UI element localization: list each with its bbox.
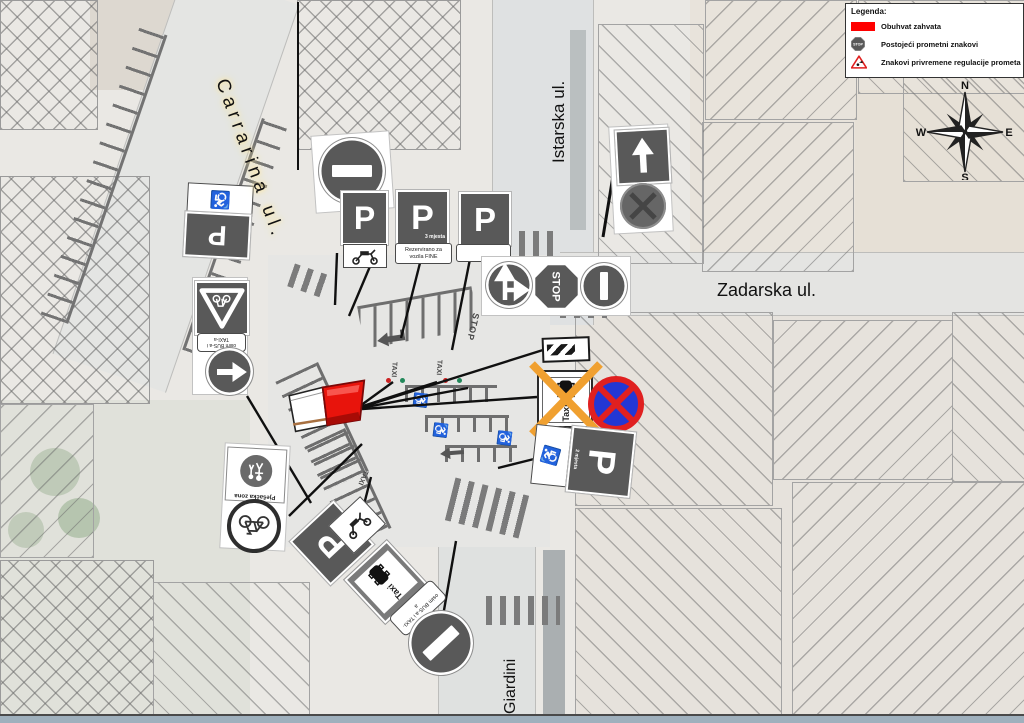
parking-letter: P xyxy=(474,203,496,236)
no-stopping-x-icon xyxy=(620,183,666,229)
callout-lines xyxy=(0,0,1024,723)
parking-disabled-sign-group: ♿ P 2 mjesta xyxy=(530,422,636,498)
legend-item: STOP Postojeći prometni znakovi xyxy=(846,35,1023,53)
work-area-icon xyxy=(851,22,875,31)
barrier-stripes xyxy=(547,344,575,356)
legend-item-label: Postojeći prometni znakovi xyxy=(881,40,978,49)
no-stopping-sign-gray xyxy=(620,183,666,229)
temporary-sign-icon xyxy=(851,55,867,69)
stop-sign: STOP xyxy=(533,263,580,310)
legend-item-label: Znakovi privremene regulacije prometa xyxy=(881,58,1021,67)
parking-places-label: 3 mjesta xyxy=(425,235,445,241)
yield-bicycle-sign xyxy=(195,281,249,335)
stop-text: STOP xyxy=(549,271,561,302)
pedestrian-zone-sign: Pješačka zona xyxy=(225,446,288,503)
compass-north-label: N xyxy=(961,80,969,92)
parking-letter: P xyxy=(411,201,434,235)
legend: Legenda: Obuhvat zahvata STOP Postojeći … xyxy=(845,3,1024,78)
no-entry-sign xyxy=(581,263,627,309)
compass-south-label: S xyxy=(961,172,968,180)
yield-triangle-icon xyxy=(199,286,245,330)
no-stopping-sign-colored xyxy=(588,376,644,432)
mandatory-right-sign xyxy=(206,348,253,395)
straight-or-right-arrows-icon xyxy=(486,262,532,308)
street-label-zadarska: Zadarska ul. xyxy=(717,280,816,301)
work-area-truck xyxy=(286,378,371,436)
bicycle-icon xyxy=(236,513,271,539)
pedestrians-icon xyxy=(244,458,269,483)
compass-east-label: E xyxy=(1005,127,1012,139)
pedestrian-circle xyxy=(239,454,273,488)
right-arrow-icon xyxy=(206,348,253,395)
barrier-board-sign xyxy=(542,336,591,363)
wheelchair-icon: ♿ xyxy=(539,443,564,468)
motorcycle-plate xyxy=(343,244,387,268)
map-bottom-strip xyxy=(0,716,1024,723)
no-entry-bar xyxy=(422,625,459,661)
parking-disabled-sign-group: ♿ P xyxy=(184,182,254,259)
reserved-plate: Rezervirano za vozila FINE xyxy=(395,243,452,264)
street-label-istarska: Istarska ul. xyxy=(549,81,569,163)
legend-item: Obuhvat zahvata xyxy=(846,17,1023,35)
legend-item: Znakovi privremene regulacije prometa xyxy=(846,53,1023,71)
parking-letter: P xyxy=(354,202,375,234)
no-entry-bar xyxy=(332,165,373,178)
parking-places-label: 2 mjesta xyxy=(571,449,579,470)
reserved-plate-text: Rezervirano za vozila FINE xyxy=(400,247,448,260)
up-arrow-icon xyxy=(619,132,667,180)
parking-sign: P xyxy=(459,192,511,246)
wheelchair-icon: ♿ xyxy=(209,189,231,210)
existing-sign-icon: STOP xyxy=(851,37,865,51)
parking-sign: P xyxy=(341,191,388,245)
legend-title: Legenda: xyxy=(846,4,1023,17)
svg-text:STOP: STOP xyxy=(853,43,863,47)
no-entry-bar xyxy=(600,272,609,301)
traffic-regulation-plan: STOP TAXI TAXI TAXI ♿ ♿ ♿ P P xyxy=(0,0,1024,723)
parking-sign: P xyxy=(183,211,251,259)
compass-west-label: W xyxy=(916,127,927,139)
legend-item-label: Obuhvat zahvata xyxy=(881,22,941,31)
compass-rose: N E S W xyxy=(915,80,1015,180)
street-label-giardini: Giardini xyxy=(502,659,520,714)
parking-letter: P xyxy=(207,221,227,250)
straight-or-right-sign xyxy=(486,262,532,308)
taxi-label: Taxi xyxy=(385,582,404,602)
motorcycle-icon xyxy=(338,506,376,544)
parking-sign: P 3 mjesta xyxy=(396,190,449,245)
bus-taxi-plate-text: osim BUS-a i TAXI-a xyxy=(201,337,243,349)
one-way-straight-sign xyxy=(615,128,672,186)
parking-letter: P xyxy=(581,447,621,476)
parking-sign: P 2 mjesta xyxy=(566,426,637,498)
motorcycle-icon xyxy=(350,248,380,265)
